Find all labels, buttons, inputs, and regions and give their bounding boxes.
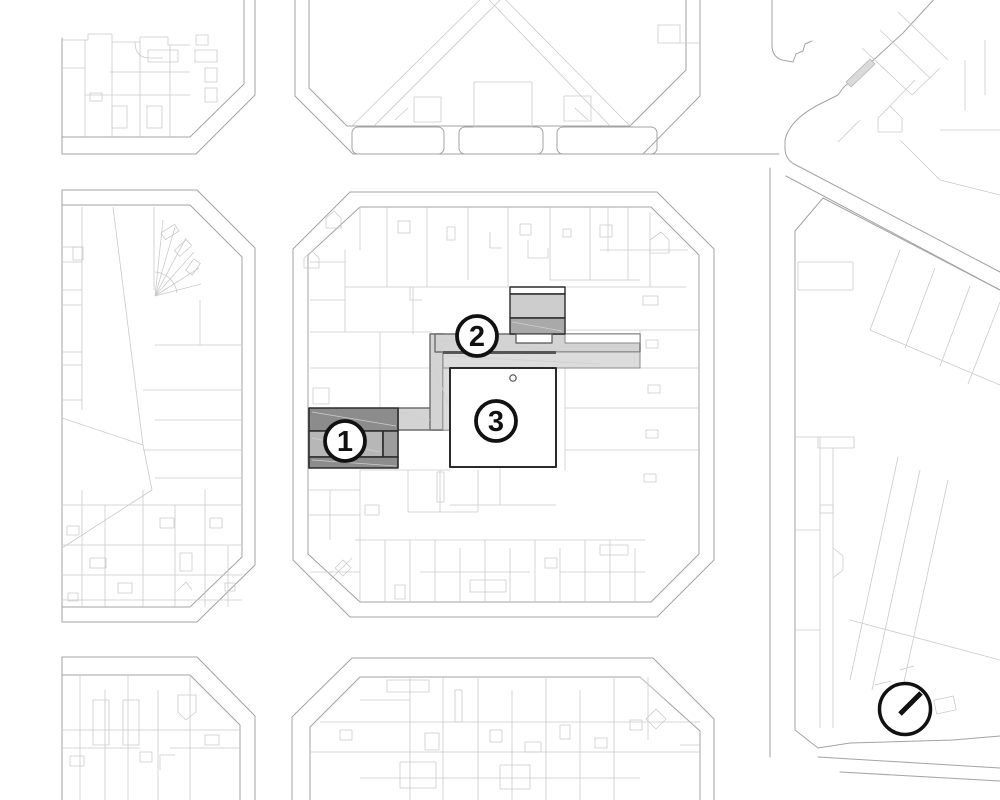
north-arrow-icon (880, 684, 931, 735)
marker-2-label: 2 (469, 321, 485, 353)
avenue-north-edge (785, 0, 1000, 272)
block-right-outline (795, 198, 1000, 748)
block-mid-left-outline (62, 190, 255, 622)
site-plan-map: 1 2 3 (0, 0, 1000, 800)
walkway-ledge (565, 334, 640, 343)
curb-piece (352, 127, 444, 154)
upper-building-band (510, 318, 565, 334)
street-vertical-right (770, 0, 812, 757)
marker-1-label: 1 (337, 426, 353, 458)
courtyard-dot (510, 375, 516, 381)
curb-piece (557, 127, 657, 154)
block-bottom-center-outline (292, 658, 714, 800)
parcels-right-block (795, 250, 1000, 728)
parcels-bottom-left (62, 675, 240, 800)
parcels-top-right (838, 12, 1000, 195)
street-bottom-right (818, 757, 1000, 781)
block-top-center-outline (295, 0, 700, 154)
upper-building-body (510, 294, 565, 318)
block-bottom-left-outline (62, 657, 255, 800)
parcels-bottom-center (310, 677, 700, 800)
marker-3-label: 3 (488, 406, 504, 438)
upper-building-roof-strip (510, 287, 565, 294)
upper-building-gap (516, 334, 552, 343)
parcels-mid-left (62, 207, 242, 607)
project-highlight (309, 59, 875, 468)
building-1-mid-right (383, 431, 398, 457)
highlighted-sliver (846, 59, 875, 87)
block-top-left-outline (62, 0, 255, 154)
marker-2: 2 (457, 316, 497, 356)
parcels-top-center (352, 0, 700, 126)
parcels-top-left (62, 34, 208, 137)
site-plan-page: 1 2 3 (0, 0, 1000, 800)
marker-1: 1 (325, 421, 365, 461)
marker-3: 3 (476, 401, 516, 441)
curb-piece (459, 127, 543, 154)
